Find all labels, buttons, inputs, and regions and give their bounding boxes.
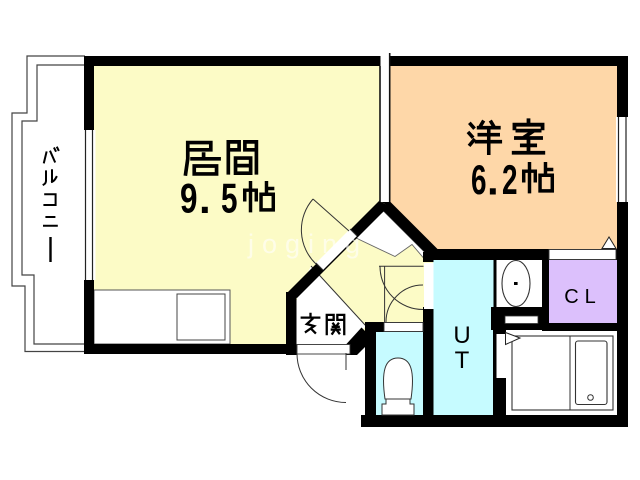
svg-text:U: U xyxy=(453,322,470,349)
svg-text:5: 5 xyxy=(221,175,238,222)
svg-text:joging: joging xyxy=(247,229,368,259)
svg-text:.: . xyxy=(487,157,499,204)
svg-text:CL: CL xyxy=(564,286,602,308)
svg-text:9: 9 xyxy=(180,175,198,222)
svg-text:6: 6 xyxy=(471,156,487,203)
svg-text:.: . xyxy=(199,175,211,222)
svg-text:2: 2 xyxy=(502,156,518,203)
svg-text:T: T xyxy=(455,347,470,374)
